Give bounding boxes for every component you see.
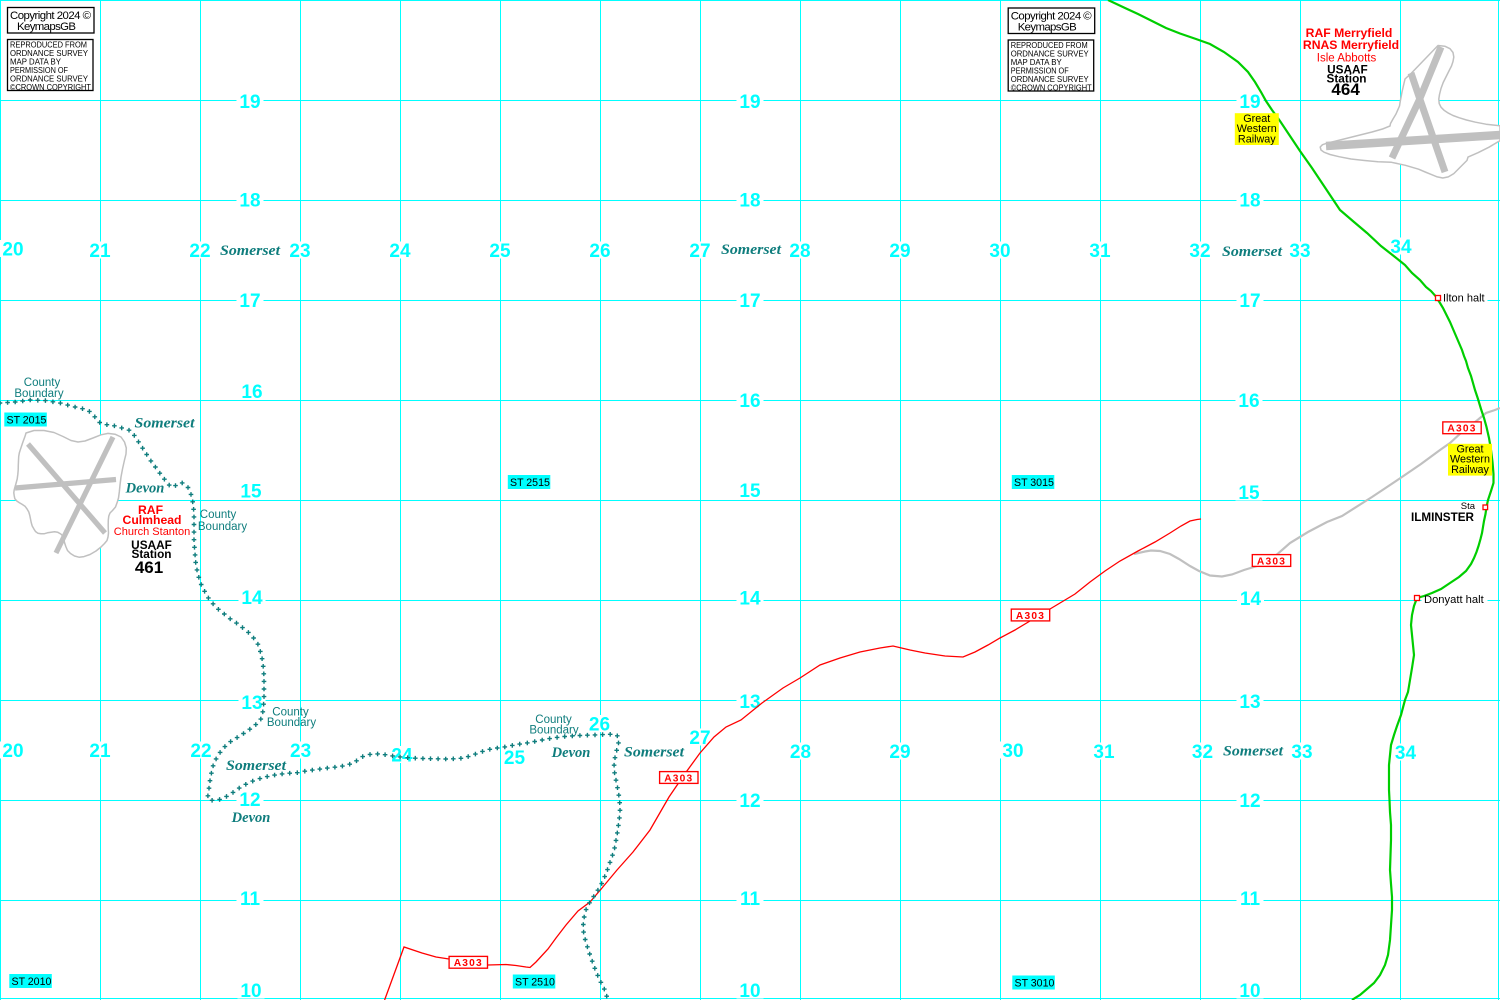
svg-text:22: 22 [190,741,211,762]
svg-text:19: 19 [1239,92,1260,113]
svg-text:Boundary: Boundary [267,717,316,729]
svg-text:27: 27 [689,241,710,262]
svg-text:28: 28 [790,742,811,763]
svg-text:©CROWN COPYRIGHT: ©CROWN COPYRIGHT [10,82,91,92]
svg-text:17: 17 [239,291,260,312]
svg-text:A303: A303 [454,958,483,969]
svg-text:ST 3010: ST 3010 [1015,978,1055,990]
svg-text:15: 15 [240,481,262,502]
svg-text:A303: A303 [664,773,693,784]
svg-text:18: 18 [239,190,260,211]
svg-text:19: 19 [239,92,260,113]
svg-text:21: 21 [89,241,111,262]
svg-text:26: 26 [589,714,610,735]
svg-text:20: 20 [2,239,23,260]
svg-text:19: 19 [739,92,760,113]
svg-text:16: 16 [241,382,262,403]
svg-text:13: 13 [241,693,262,714]
svg-text:Railway: Railway [1451,464,1489,476]
svg-text:10: 10 [240,981,261,1000]
svg-text:ST 2015: ST 2015 [7,415,47,427]
svg-text:12: 12 [239,790,260,811]
svg-text:17: 17 [1239,291,1260,312]
svg-text:15: 15 [1238,483,1260,504]
svg-text:23: 23 [290,741,311,762]
svg-text:13: 13 [739,692,760,713]
svg-text:Somerset: Somerset [226,758,287,774]
svg-text:11: 11 [240,889,261,910]
svg-text:Somerset: Somerset [624,745,685,761]
svg-text:Devon: Devon [125,481,165,497]
svg-text:24: 24 [389,241,411,262]
svg-text:12: 12 [1239,791,1260,812]
svg-text:21: 21 [89,741,111,762]
svg-text:Ilton halt: Ilton halt [1443,292,1485,304]
svg-text:Culmhead: Culmhead [123,513,182,527]
svg-text:RNAS Merryfield: RNAS Merryfield [1303,38,1399,52]
svg-text:Somerset: Somerset [220,243,281,259]
svg-text:ST 2510: ST 2510 [515,977,555,989]
svg-text:18: 18 [1239,190,1260,211]
svg-text:31: 31 [1089,241,1111,262]
svg-text:14: 14 [1240,589,1262,610]
svg-text:11: 11 [740,889,761,910]
svg-text:16: 16 [1238,391,1259,412]
svg-text:33: 33 [1291,742,1312,763]
svg-text:464: 464 [1331,80,1360,99]
svg-text:10: 10 [1239,981,1260,1000]
svg-text:Boundary: Boundary [198,521,247,533]
svg-text:Somerset: Somerset [1223,744,1284,760]
svg-text:14: 14 [739,588,761,609]
svg-text:ILMINSTER: ILMINSTER [1411,511,1475,524]
svg-text:Donyatt halt: Donyatt halt [1424,594,1485,606]
svg-text:32: 32 [1192,742,1213,763]
svg-text:Somerset: Somerset [1222,244,1283,260]
svg-text:12: 12 [739,791,760,812]
svg-text:©CROWN COPYRIGHT: ©CROWN COPYRIGHT [1011,83,1092,93]
svg-text:ST 2515: ST 2515 [510,477,550,489]
svg-text:A303: A303 [1257,556,1286,567]
svg-text:KeymapsGB: KeymapsGB [17,21,76,33]
svg-text:17: 17 [739,291,760,312]
svg-text:Devon: Devon [551,745,591,761]
svg-text:14: 14 [241,588,263,609]
svg-text:33: 33 [1289,241,1310,262]
svg-text:16: 16 [739,391,760,412]
svg-text:29: 29 [889,742,910,763]
svg-text:23: 23 [289,241,310,262]
svg-text:26: 26 [589,241,610,262]
svg-text:32: 32 [1189,241,1210,262]
svg-text:KeymapsGB: KeymapsGB [1018,22,1077,34]
svg-text:11: 11 [1240,889,1261,910]
svg-text:20: 20 [2,741,23,762]
svg-text:Somerset: Somerset [135,416,196,432]
svg-text:30: 30 [989,241,1010,262]
svg-text:15: 15 [739,481,761,502]
svg-text:Somerset: Somerset [721,242,782,258]
svg-text:A303: A303 [1016,611,1045,622]
svg-text:30: 30 [1002,741,1023,762]
svg-text:34: 34 [1395,743,1417,764]
svg-text:461: 461 [135,558,163,577]
svg-text:A303: A303 [1447,424,1476,435]
svg-text:Devon: Devon [231,810,271,826]
svg-text:10: 10 [739,981,760,1000]
svg-text:Railway: Railway [1238,133,1276,145]
svg-text:31: 31 [1093,742,1115,763]
svg-text:28: 28 [789,241,810,262]
svg-text:ST 3015: ST 3015 [1014,477,1054,489]
svg-text:Boundary: Boundary [14,388,63,400]
svg-text:Church Stanton: Church Stanton [114,526,190,538]
svg-text:Boundary: Boundary [529,725,578,737]
svg-text:27: 27 [689,728,710,749]
svg-text:ST 2010: ST 2010 [12,976,52,988]
svg-text:13: 13 [1239,692,1260,713]
svg-text:29: 29 [889,241,910,262]
svg-text:25: 25 [489,241,511,262]
svg-text:25: 25 [504,748,526,769]
svg-text:18: 18 [739,190,760,211]
svg-text:County: County [200,509,237,521]
svg-text:22: 22 [189,241,210,262]
